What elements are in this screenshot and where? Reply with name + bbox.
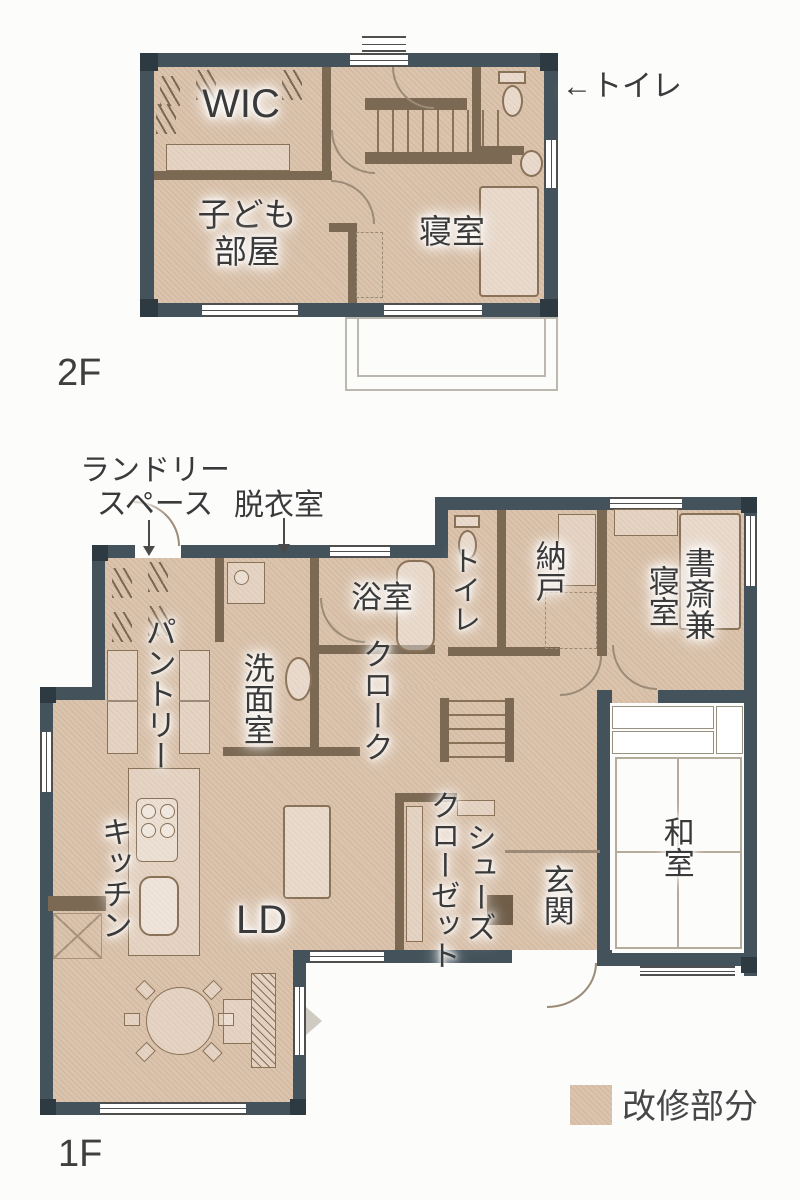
closet [716, 706, 743, 754]
stove-burner [141, 823, 156, 838]
room-label-shoes-closet-col2: クローゼット [425, 790, 459, 970]
room-label-pantry: パントリー [140, 616, 175, 771]
interior-wall [310, 558, 319, 756]
outer-wall [140, 53, 154, 317]
outer-wall [597, 953, 757, 966]
balcony-inner-line [357, 317, 546, 377]
room-label-entrance: 玄関 [538, 864, 573, 926]
toilet-tank [498, 71, 526, 84]
vent-box [362, 36, 406, 52]
stairs-rail [505, 698, 514, 762]
interior-wall [497, 510, 506, 656]
laundry-line2: スペース [80, 488, 230, 522]
pillar [741, 497, 757, 513]
down-arrow-head [278, 544, 290, 554]
shoe-shelf [457, 800, 495, 816]
wall-japanese-room [597, 690, 610, 963]
room-label-bedroom-2f: 寝室 [419, 214, 485, 251]
porch-window [640, 966, 735, 976]
room-label-kids-room: 子ども 部屋 [198, 197, 297, 271]
washbasin [520, 150, 543, 177]
interior-wall [318, 747, 360, 756]
floor-2f-label: 2F [57, 352, 101, 395]
window [310, 950, 384, 963]
floorplan-page: WIC 子ども 部屋 寝室 ←トイレ 2F [0, 0, 800, 1200]
interior-wall [329, 223, 357, 232]
room-label-cloak: クローク [357, 638, 392, 762]
entrance-door-opening [512, 950, 598, 963]
pillar [741, 957, 757, 973]
pantry-shelf-line [179, 700, 210, 702]
hanger-marks [112, 568, 132, 598]
closet [612, 731, 714, 754]
kids-room-line2: 部屋 [198, 234, 297, 271]
pillar [290, 1099, 306, 1115]
annotation-laundry-space: ランドリー スペース [80, 454, 230, 521]
laundry-line1: ランドリー [80, 454, 230, 488]
stairs [449, 700, 505, 760]
hanger-marks [148, 562, 168, 592]
floor-1f-label: 1F [58, 1133, 102, 1176]
interior-wall [395, 793, 404, 950]
pillar [140, 299, 158, 317]
kitchen-sink [139, 876, 179, 936]
interior-wall [154, 171, 332, 180]
legend-label: 改修部分 [622, 1088, 758, 1126]
room-label-washroom: 洗面室 [238, 652, 273, 745]
hanger-marks [160, 76, 180, 106]
bed [479, 186, 539, 297]
pantry-shelf-line [107, 700, 138, 702]
closet-counter [166, 144, 290, 171]
room-label-shoes-closet-col1: シューズ [461, 822, 495, 942]
hanger-marks [156, 104, 176, 134]
room-label-bathroom: 浴室 [351, 581, 413, 616]
interior-wall [472, 146, 524, 155]
closet [612, 706, 714, 729]
interior-wall [597, 510, 607, 656]
room-label-kitchen: キッチン [96, 816, 131, 940]
stove-burner [141, 804, 156, 819]
room-label-wic: WIC [202, 82, 280, 127]
shoe-shelf [406, 806, 423, 942]
sofa [283, 805, 331, 899]
interior-wall [322, 67, 331, 177]
washbasin [285, 657, 312, 701]
outer-wall [495, 950, 512, 963]
window [350, 53, 408, 67]
desk [614, 509, 678, 536]
toilet-tank [454, 515, 480, 528]
stove-burner [160, 804, 175, 819]
outer-wall [435, 497, 610, 510]
terrace-window [293, 987, 306, 1055]
legend-swatch [570, 1085, 612, 1125]
pillar [540, 53, 558, 71]
dining-table [146, 987, 214, 1055]
door-opening [612, 690, 658, 703]
kids-room-line1: 子ども [198, 197, 297, 234]
hanger-marks [282, 70, 302, 100]
window [744, 516, 757, 586]
interior-wall [223, 747, 311, 756]
pillar [92, 545, 108, 561]
stairs-rail [440, 698, 449, 762]
outer-wall [140, 53, 558, 67]
pantry-shelf [179, 650, 210, 754]
down-arrow-head [143, 546, 155, 556]
annotation-toilet-2f: ←トイレ [562, 70, 682, 104]
tv-board [251, 973, 276, 1068]
room-label-study-bedroom-col1: 書斎兼 [679, 547, 714, 640]
room-label-japanese-room: 和室 [658, 816, 693, 878]
closet-dashed [356, 232, 383, 298]
room-label-study-bedroom-col2: 寝室 [643, 565, 678, 627]
window [544, 140, 558, 188]
washing-machine-drum [234, 570, 249, 585]
room-label-toilet-1f: トイレ [447, 546, 479, 633]
interior-wall [215, 558, 224, 642]
door-opening [135, 545, 181, 558]
down-arrow [283, 518, 285, 544]
pillar [40, 1099, 56, 1115]
pillar [40, 687, 56, 703]
window [330, 545, 390, 558]
pillar [540, 299, 558, 317]
interior-wall [472, 67, 481, 155]
chair [218, 1013, 234, 1026]
annotation-dressing-room: 脱衣室 [234, 489, 324, 523]
entry-step-line [505, 850, 600, 853]
window [40, 732, 53, 792]
outer-wall [92, 545, 105, 700]
refrigerator-space [53, 913, 102, 959]
room-label-storage: 納戸 [530, 540, 565, 602]
pantry-shelf [107, 650, 138, 754]
pillar [140, 53, 158, 71]
window [384, 303, 482, 317]
interior-wall [448, 647, 560, 656]
stove-burner [160, 823, 175, 838]
window [100, 1102, 246, 1115]
down-arrow [148, 520, 150, 546]
window-marker [306, 1007, 322, 1035]
chair [124, 1013, 140, 1026]
entrance-door-arc [547, 963, 597, 1008]
room-label-living-dining: LD [236, 898, 287, 943]
hanger-marks [112, 612, 132, 642]
toilet-bowl [502, 85, 523, 117]
window [202, 303, 298, 317]
